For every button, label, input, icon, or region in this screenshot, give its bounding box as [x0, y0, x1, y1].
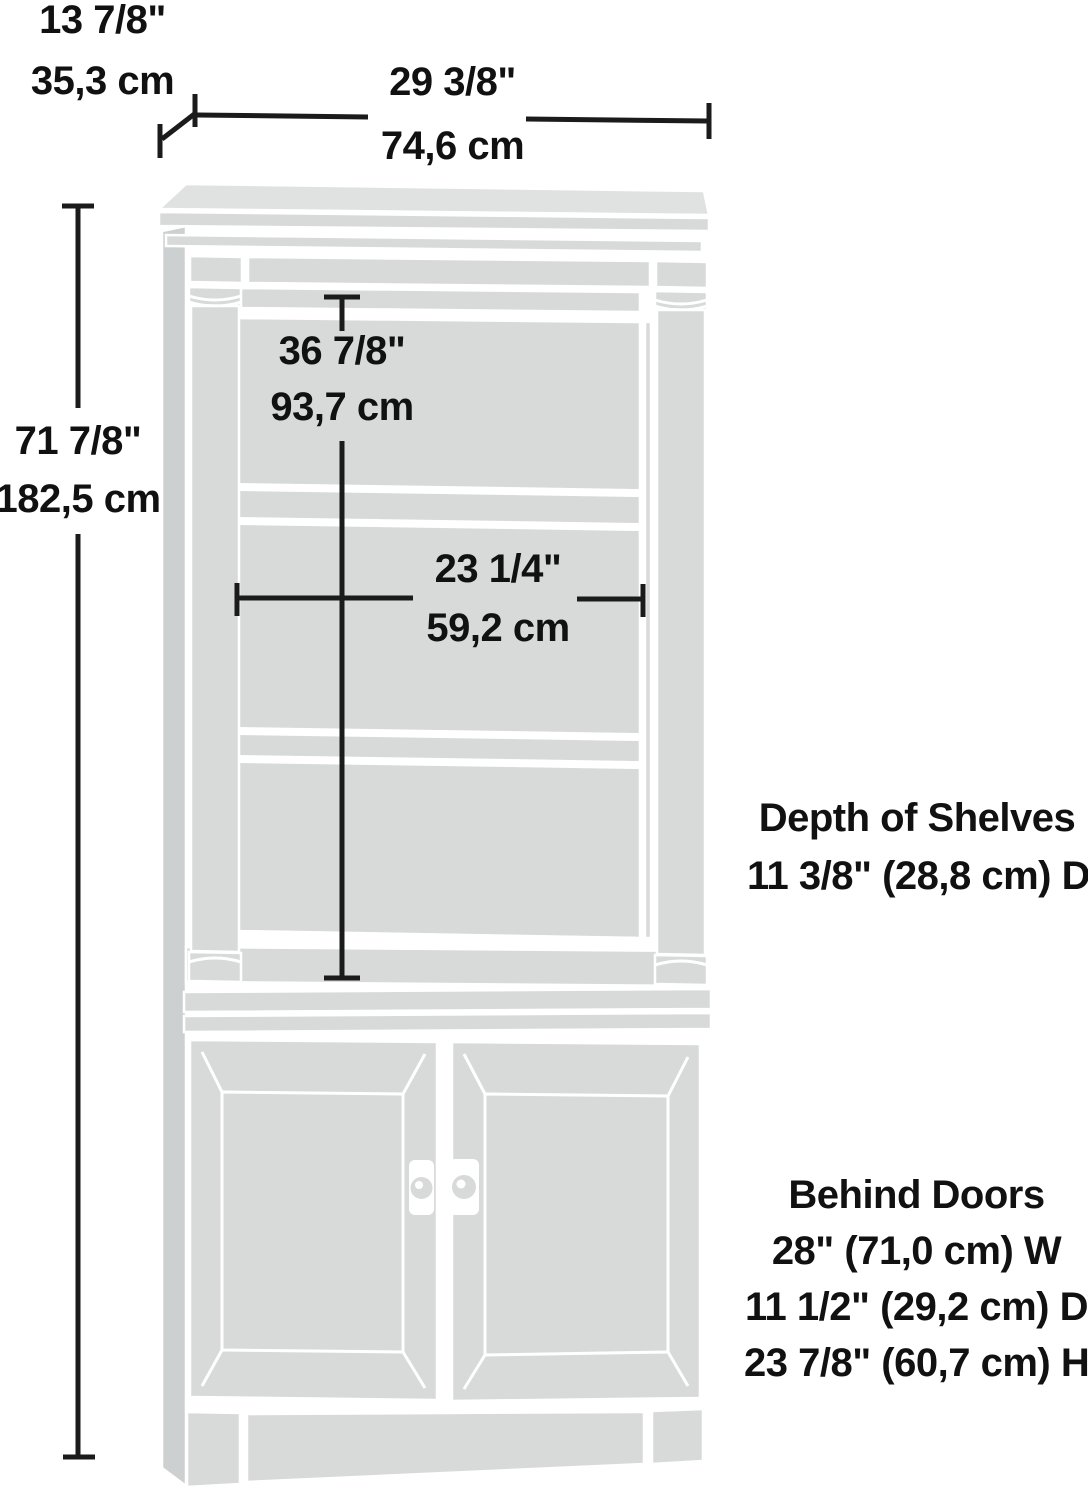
width-cm: 74,6 cm [355, 114, 550, 178]
height-inches: 71 7/8" [0, 412, 176, 470]
base-stile-left [187, 1412, 240, 1487]
interior-height-cm: 93,7 cm [247, 379, 437, 435]
dimension-diagram: 13 7/8" 35,3 cm 29 3/8" 74,6 cm 71 7/8" … [0, 0, 1088, 1500]
height-dimension-label: 71 7/8" 182,5 cm [0, 412, 176, 528]
shelves-depth-note: Depth of Shelves 11 3/8" (28,8 cm) D [747, 789, 1087, 905]
door-right [452, 1042, 700, 1401]
interior-width-dimension-label: 23 1/4" 59,2 cm [388, 540, 608, 658]
interior-height-dimension-label: 36 7/8" 93,7 cm [247, 323, 437, 435]
height-cm: 182,5 cm [0, 470, 176, 528]
shelves-note-title: Depth of Shelves [747, 789, 1087, 847]
right-side-wall-edge [645, 322, 651, 938]
width-inches: 29 3/8" [355, 50, 550, 114]
shelves-note-value: 11 3/8" (28,8 cm) D [747, 847, 1087, 905]
interior-height-inches: 36 7/8" [247, 323, 437, 379]
doors-note-title: Behind Doors [744, 1167, 1088, 1223]
door-pull-right-icon [449, 1159, 479, 1215]
pilaster-left [189, 287, 241, 982]
dim-line-depth [160, 112, 197, 158]
width-dimension-label: 29 3/8" 74,6 cm [355, 50, 550, 178]
doors-note-height: 23 7/8" (60,7 cm) H [744, 1335, 1088, 1391]
behind-doors-note: Behind Doors 28" (71,0 cm) W 11 1/2" (29… [744, 1167, 1088, 1391]
depth-dimension-label: 13 7/8" 35,3 cm [5, 0, 200, 112]
doors-note-width: 28" (71,0 cm) W [744, 1223, 1088, 1279]
base-front-rail [247, 1412, 644, 1482]
interior-top-board [236, 288, 640, 312]
mid-molding [184, 989, 711, 1032]
dim-line-height [62, 206, 95, 1457]
doors-note-depth: 11 1/2" (29,2 cm) D [744, 1279, 1088, 1335]
cornice [159, 184, 709, 252]
base-stile-right [652, 1409, 703, 1464]
interior-width-inches: 23 1/4" [388, 540, 608, 599]
cornice-step-band [166, 235, 702, 252]
door-left [190, 1040, 437, 1400]
mid-deck [186, 947, 707, 986]
depth-inches: 13 7/8" [5, 0, 200, 51]
cornice-top-face [159, 184, 709, 215]
pilaster-right [655, 291, 707, 985]
base [187, 1409, 703, 1487]
depth-cm: 35,3 cm [5, 51, 200, 112]
door-pull-left-icon [409, 1160, 434, 1215]
frieze [190, 256, 707, 288]
interior-width-cm: 59,2 cm [388, 599, 608, 658]
